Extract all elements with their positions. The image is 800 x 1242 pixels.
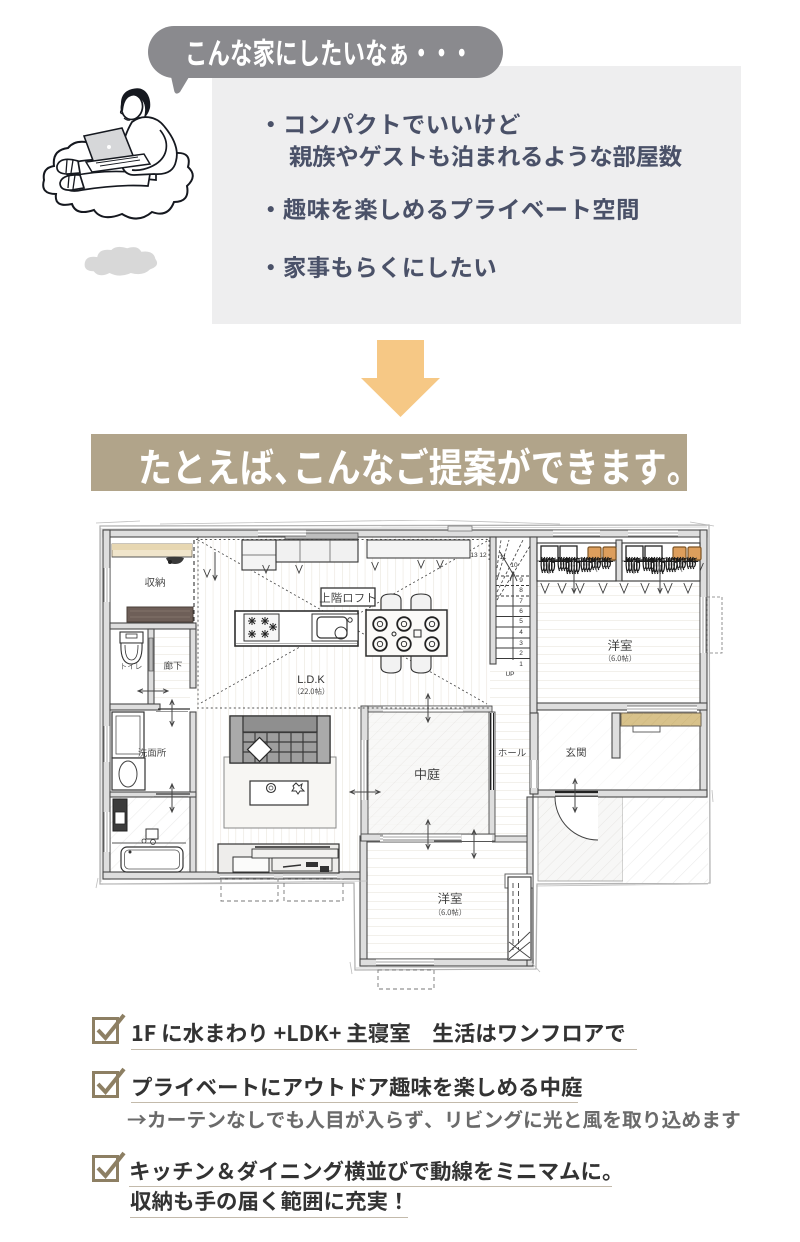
svg-text:9: 9: [519, 577, 523, 584]
svg-text:2: 2: [519, 650, 523, 657]
svg-text:6: 6: [519, 608, 523, 615]
svg-text:5: 5: [519, 618, 523, 625]
svg-text:10: 10: [510, 562, 518, 569]
svg-text:13: 13: [470, 552, 478, 559]
svg-text:4: 4: [519, 629, 523, 636]
svg-text:UP: UP: [505, 671, 514, 678]
svg-text:8: 8: [519, 587, 523, 594]
svg-text:11: 11: [500, 554, 507, 561]
svg-text:3: 3: [519, 640, 523, 647]
svg-text:12: 12: [479, 552, 487, 559]
svg-text:7: 7: [519, 598, 523, 605]
svg-text:1: 1: [519, 661, 523, 668]
svg-text:L.D.K: L.D.K: [297, 674, 325, 686]
